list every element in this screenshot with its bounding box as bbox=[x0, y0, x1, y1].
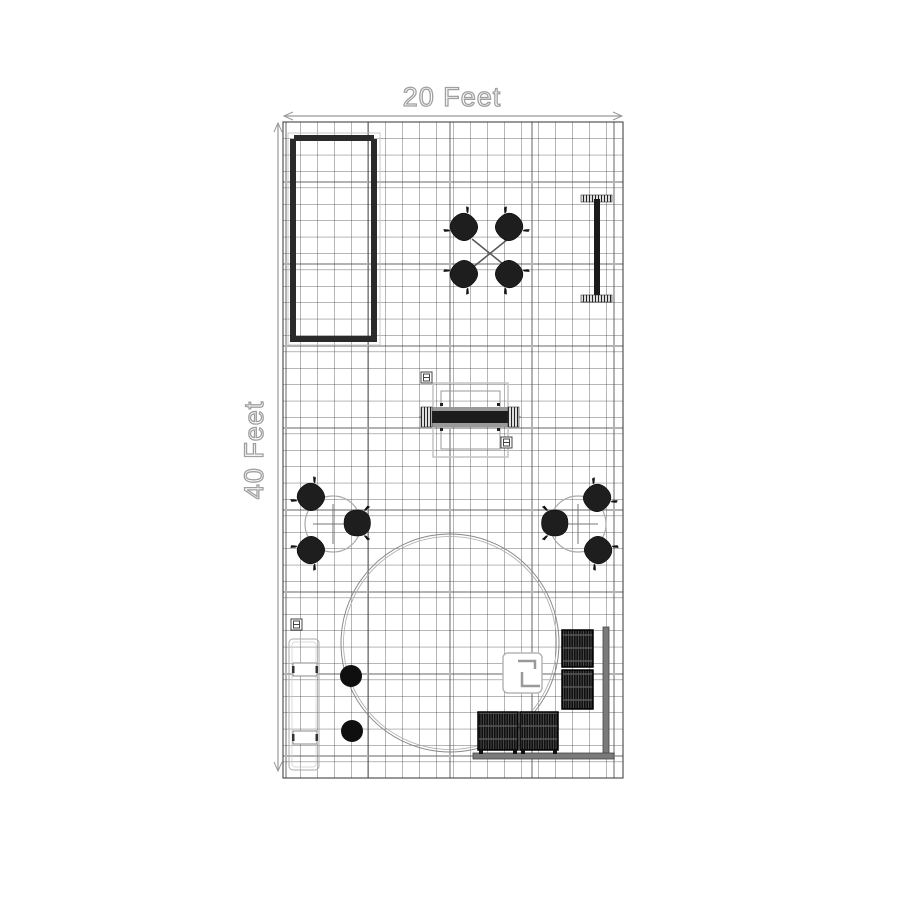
panel-connector-bottom-icon bbox=[581, 295, 612, 302]
floorplan-canvas: 20 Feet 40 Feet bbox=[0, 0, 900, 900]
solid-circle-stool-icon bbox=[341, 720, 363, 742]
dimension-height: 40 Feet bbox=[239, 123, 282, 771]
height-dimension-label: 40 Feet bbox=[239, 401, 269, 500]
equipment-stand bbox=[503, 653, 542, 693]
counter-with-coil-ends-icon bbox=[421, 403, 519, 431]
vertical-panel-icon bbox=[594, 199, 600, 298]
outlet-box-icon bbox=[501, 437, 512, 448]
solid-circle-stool-icon bbox=[340, 665, 362, 687]
outlet-box-icon bbox=[291, 619, 302, 630]
cabinet-wall-horizontal bbox=[473, 753, 614, 759]
hatched-square-cabinet-icon bbox=[562, 630, 593, 667]
floorplan-drawing: 20 Feet 40 Feet bbox=[0, 0, 900, 900]
outlet-box-icon bbox=[421, 372, 432, 383]
hatched-square-cabinet-icon bbox=[562, 670, 593, 709]
cabinet-wall-vertical bbox=[603, 627, 609, 755]
dimension-width: 20 Feet bbox=[284, 82, 622, 120]
hatched-square-cabinet-icon bbox=[520, 712, 558, 750]
width-dimension-label: 20 Feet bbox=[403, 82, 502, 112]
hatched-square-cabinet-icon bbox=[478, 712, 518, 750]
